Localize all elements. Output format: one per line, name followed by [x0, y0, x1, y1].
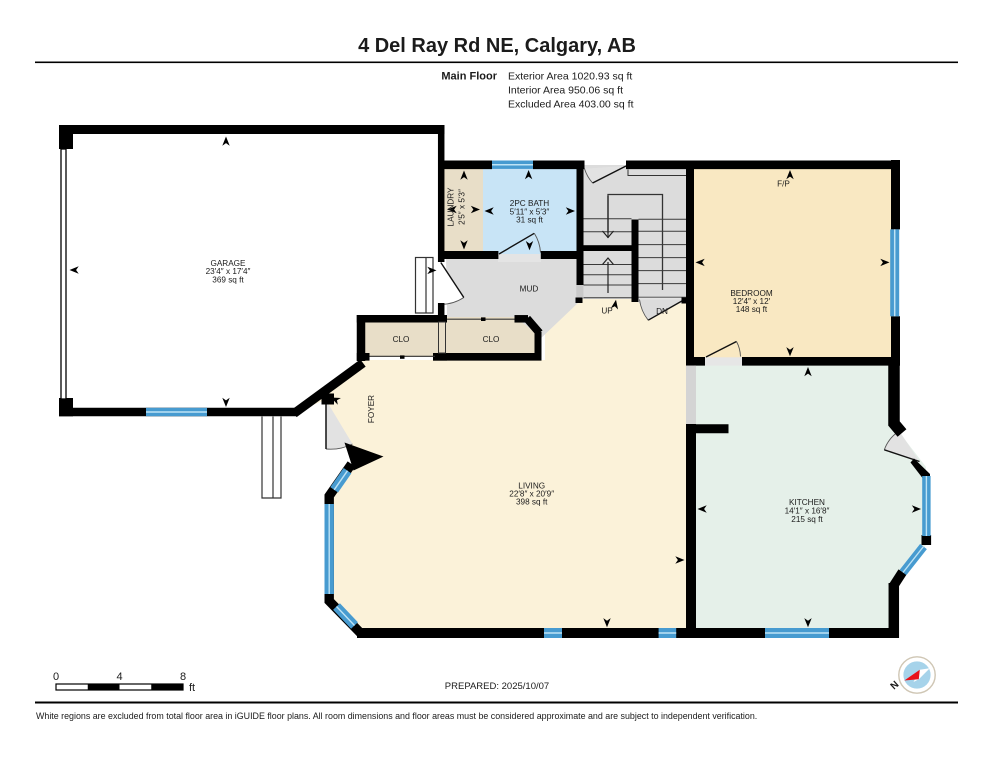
svg-text:215 sq ft: 215 sq ft	[791, 515, 823, 524]
svg-text:UP: UP	[601, 307, 613, 316]
svg-text:White regions are excluded fro: White regions are excluded from total fl…	[36, 711, 757, 721]
svg-text:MUD: MUD	[520, 285, 539, 294]
svg-text:4: 4	[116, 671, 122, 683]
svg-text:CLO: CLO	[483, 335, 500, 344]
svg-text:0: 0	[53, 671, 59, 683]
svg-text:Main Floor: Main Floor	[441, 71, 497, 83]
svg-text:Exterior Area 1020.93 sq ft: Exterior Area 1020.93 sq ft	[508, 71, 632, 83]
svg-text:F/P: F/P	[777, 180, 790, 189]
svg-text:ft: ft	[189, 682, 195, 694]
svg-text:398 sq ft: 398 sq ft	[516, 498, 548, 507]
svg-text:2′5″ x 5′3″: 2′5″ x 5′3″	[458, 189, 467, 225]
svg-text:CLO: CLO	[393, 335, 410, 344]
svg-text:FOYER: FOYER	[367, 395, 376, 423]
svg-text:PREPARED: 2025/10/07: PREPARED: 2025/10/07	[445, 681, 549, 692]
svg-text:369 sq ft: 369 sq ft	[212, 275, 244, 284]
svg-text:4 Del Ray Rd NE, Calgary, AB: 4 Del Ray Rd NE, Calgary, AB	[358, 35, 636, 57]
svg-text:DN: DN	[656, 307, 668, 316]
svg-text:8: 8	[180, 671, 186, 683]
svg-text:Excluded Area 403.00 sq ft: Excluded Area 403.00 sq ft	[508, 99, 634, 111]
svg-text:LAUNDRY: LAUNDRY	[447, 187, 456, 227]
svg-text:31 sq ft: 31 sq ft	[516, 216, 544, 225]
svg-text:Interior Area 950.06 sq ft: Interior Area 950.06 sq ft	[508, 85, 623, 97]
svg-text:148 sq ft: 148 sq ft	[736, 305, 768, 314]
